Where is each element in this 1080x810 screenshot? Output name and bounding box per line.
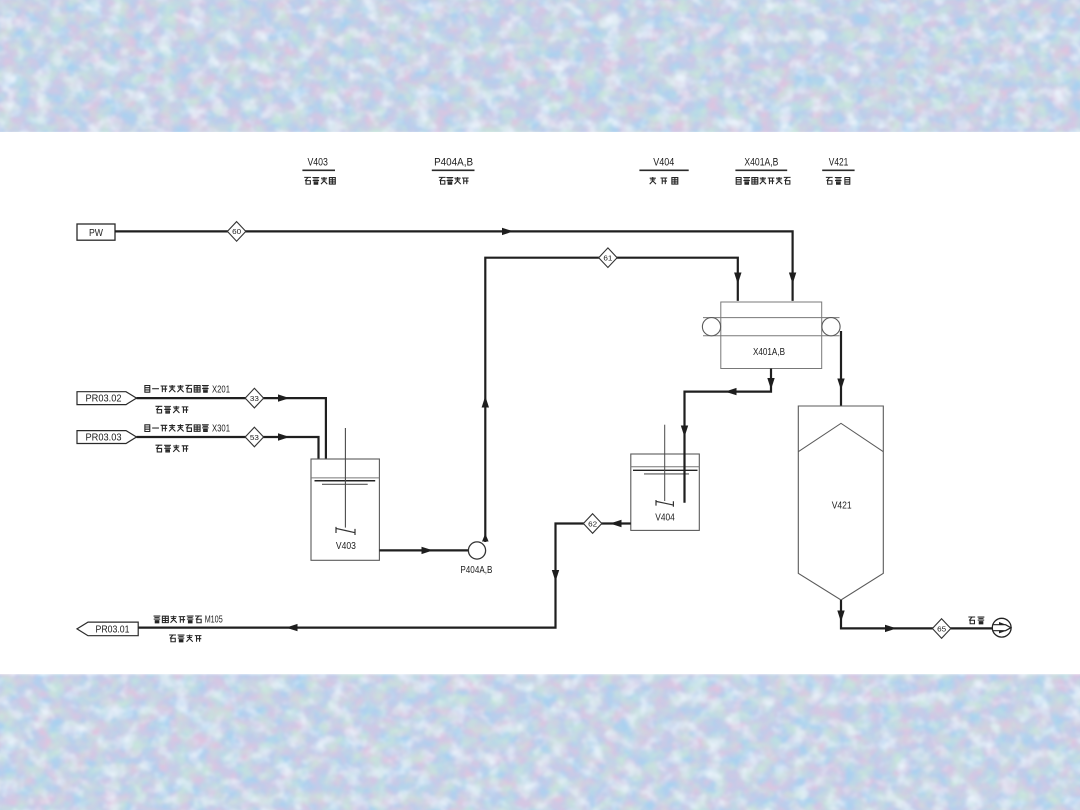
svg-text:PR03.01: PR03.01 [96, 624, 130, 636]
svg-text:61: 61 [603, 254, 612, 263]
svg-text:PW: PW [89, 227, 103, 239]
svg-text:X401A,B: X401A,B [744, 156, 778, 168]
svg-text:P404A,B: P404A,B [434, 156, 473, 168]
svg-text:53: 53 [250, 433, 259, 442]
svg-text:33: 33 [250, 394, 259, 403]
svg-text:60: 60 [232, 227, 241, 236]
svg-text:V403: V403 [307, 156, 328, 168]
svg-text:PR03.02: PR03.02 [86, 393, 122, 405]
svg-text:V421: V421 [832, 499, 852, 511]
svg-text:PR03.03: PR03.03 [86, 432, 122, 444]
svg-text:V404: V404 [653, 156, 674, 168]
svg-text:X201: X201 [212, 383, 230, 395]
svg-text:V404: V404 [655, 512, 675, 524]
svg-text:P404A,B: P404A,B [460, 564, 492, 576]
svg-text:62: 62 [588, 519, 597, 528]
svg-text:V421: V421 [829, 156, 849, 168]
svg-text:X301: X301 [212, 423, 230, 435]
svg-text:65: 65 [937, 624, 946, 633]
svg-text:X401A,B: X401A,B [753, 346, 785, 358]
svg-text:M105: M105 [205, 614, 223, 626]
svg-text:V403: V403 [336, 540, 356, 552]
